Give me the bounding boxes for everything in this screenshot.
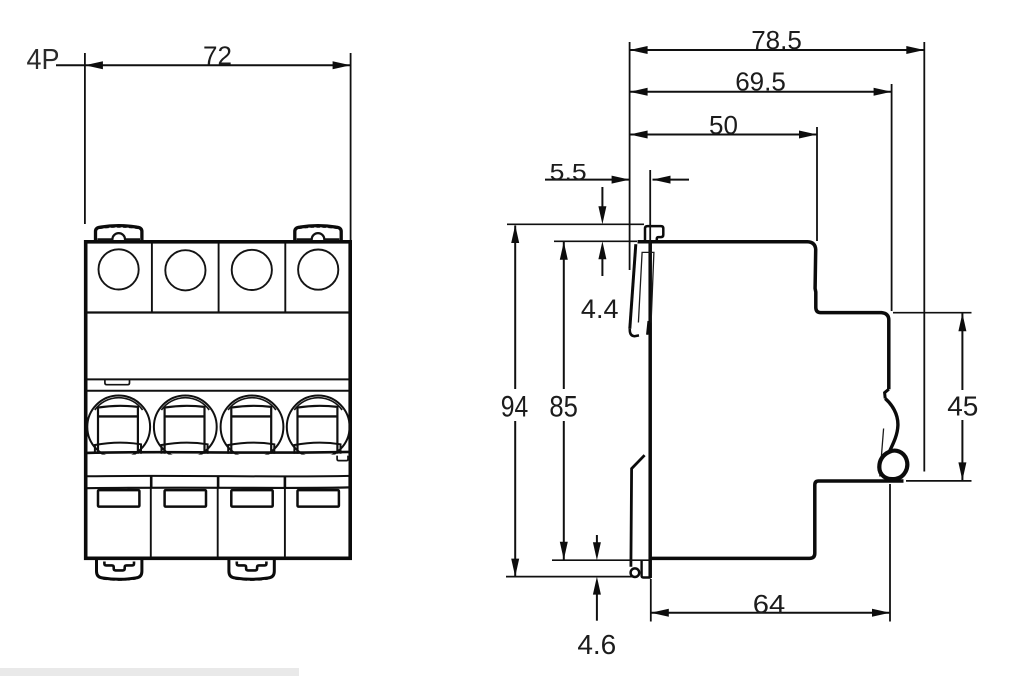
svg-text:4.6: 4.6 [577,629,616,660]
svg-text:45: 45 [947,390,978,421]
svg-text:72: 72 [203,41,232,71]
svg-text:4.4: 4.4 [581,294,619,324]
svg-text:64: 64 [753,589,786,619]
svg-text:5.5: 5.5 [550,159,587,185]
svg-text:4P: 4P [27,44,60,76]
svg-text:78.5: 78.5 [751,25,802,55]
svg-text:85: 85 [549,390,578,423]
svg-text:94: 94 [501,390,529,423]
svg-text:50: 50 [709,110,738,140]
svg-text:69.5: 69.5 [735,67,786,97]
